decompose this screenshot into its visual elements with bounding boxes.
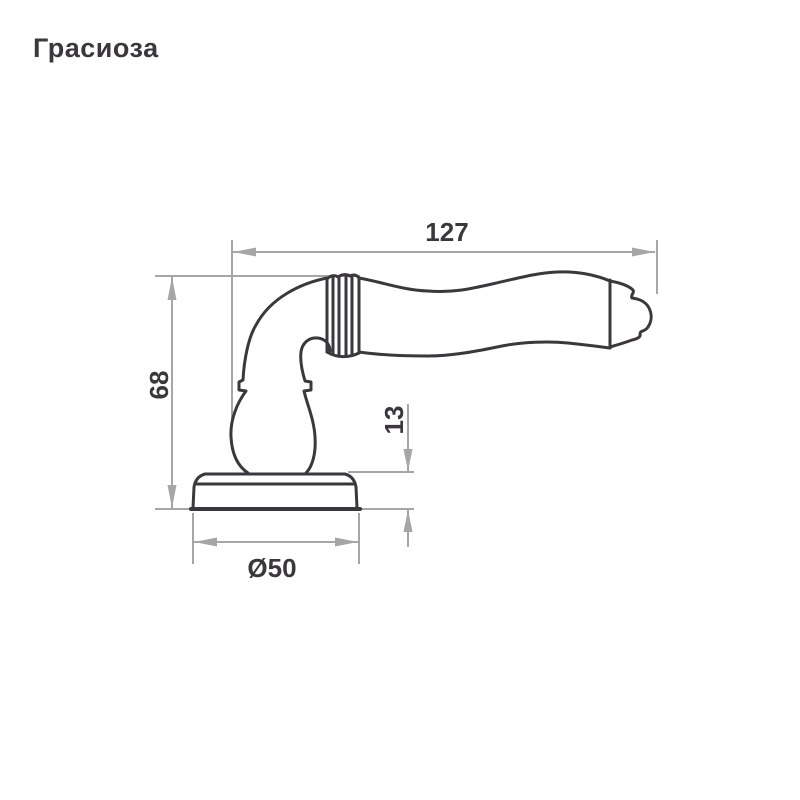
technical-drawing: 127 68 13 Ø50 (0, 0, 800, 800)
dimension-rosette-diameter: Ø50 (193, 513, 359, 583)
arrowhead (168, 277, 177, 300)
arrowhead (168, 485, 177, 508)
arrowhead (404, 449, 413, 471)
collar-rings (327, 275, 359, 357)
grip-bottom-path (359, 342, 610, 356)
arrowhead (632, 248, 655, 257)
neck-right-path (301, 338, 330, 473)
dimension-rosette-height: 13 (348, 404, 414, 547)
rosette-right-side (345, 474, 357, 508)
dimension-length-label: 127 (425, 217, 468, 247)
grip-top-path (359, 272, 610, 292)
rosette-left-side (193, 474, 205, 508)
arrowhead (233, 248, 256, 257)
elbow-neck-left-path (231, 278, 327, 473)
arrowhead (194, 538, 217, 547)
rosette (191, 474, 360, 509)
dimension-height-label: 68 (144, 371, 174, 400)
grip-finial-path (610, 281, 651, 347)
handle-outline (191, 272, 651, 509)
dimension-rosette-diameter-label: Ø50 (247, 553, 296, 583)
drawing-canvas: Грасиоза 127 68 13 (0, 0, 800, 800)
dimension-length: 127 (232, 217, 657, 426)
dimension-rosette-height-label: 13 (379, 406, 409, 435)
arrowhead (404, 510, 413, 532)
arrowhead (335, 538, 358, 547)
